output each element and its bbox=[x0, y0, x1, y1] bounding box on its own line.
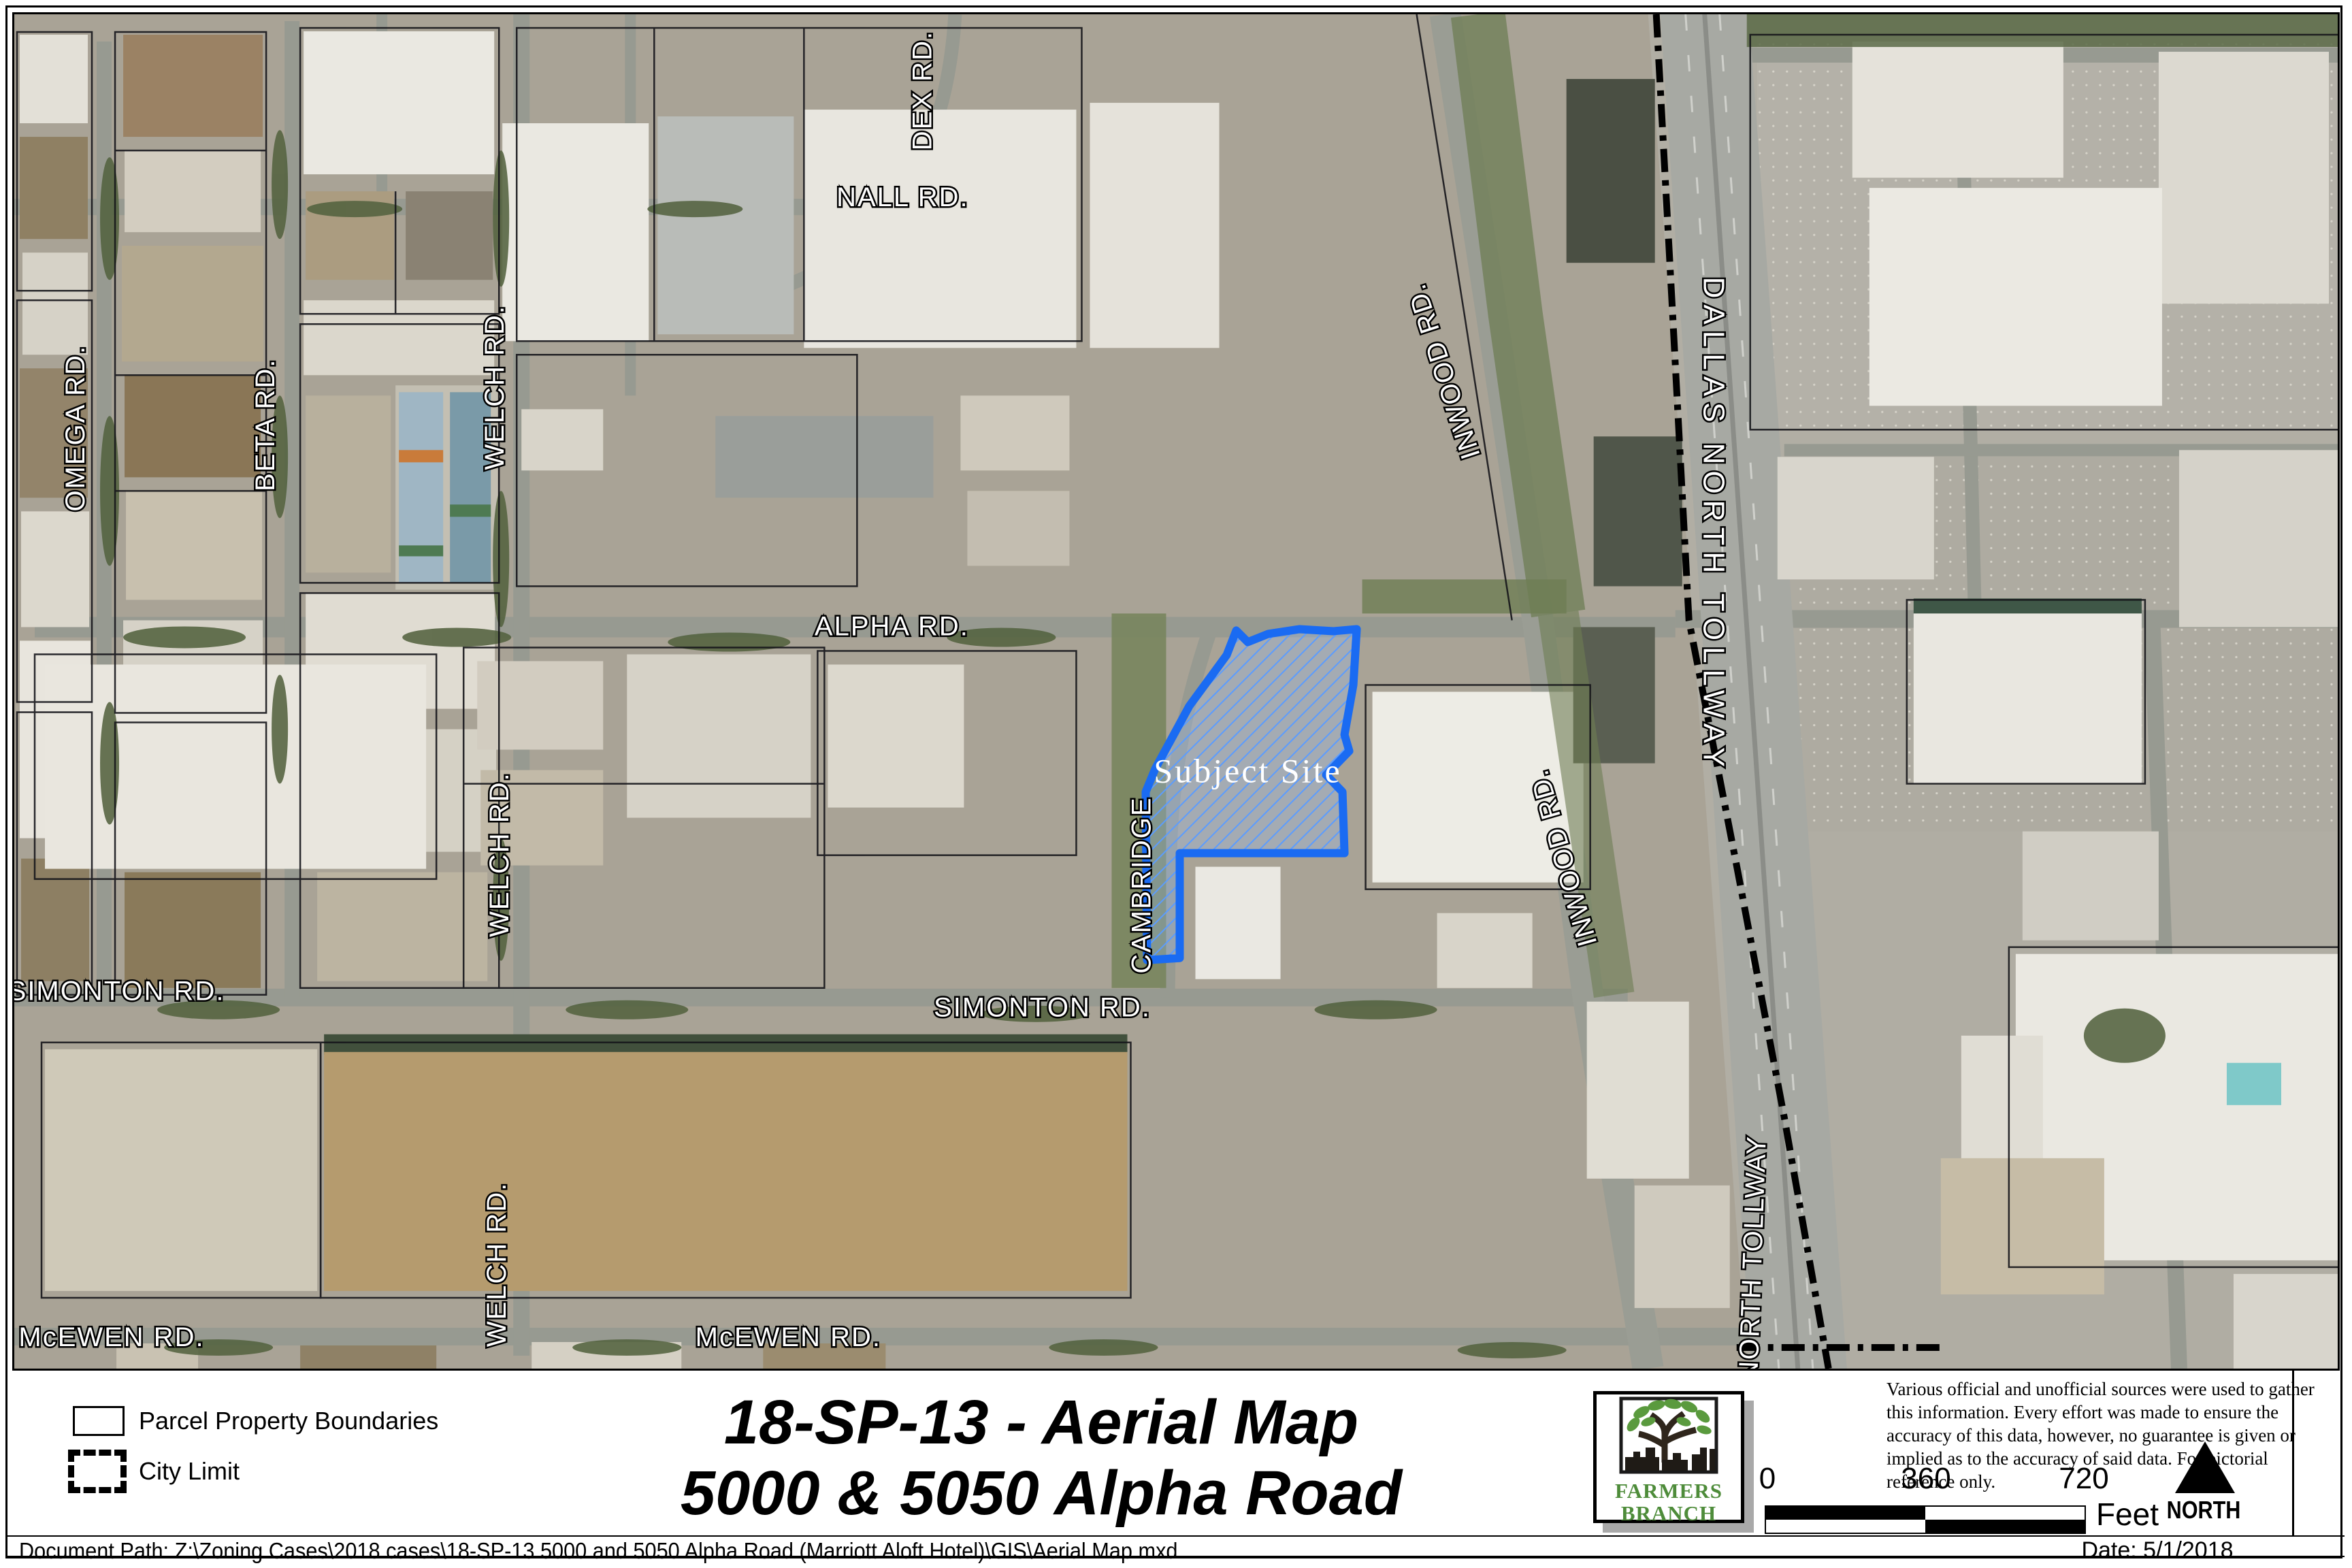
scale-tick-720: 720 bbox=[2033, 1462, 2135, 1496]
legend-label-parcel-boundaries: Parcel Property Boundaries bbox=[139, 1406, 438, 1436]
map-title: 18-SP-13 - Aerial Map 5000 & 5050 Alpha … bbox=[599, 1388, 1484, 1530]
map-title-line1: 18-SP-13 - Aerial Map bbox=[599, 1388, 1484, 1456]
logo-text-branch: BRANCH bbox=[1597, 1502, 1741, 1524]
aerial-map-document: OMEGA RD. BETA RD. WELCH RD. WELCH RD. W… bbox=[0, 0, 2352, 1568]
scale-tick-360: 360 bbox=[1875, 1462, 1977, 1496]
footer-strip-top-line bbox=[7, 1535, 2345, 1537]
farmers-branch-logo: FARMERS BRANCH bbox=[1593, 1391, 1744, 1523]
legend-label-city-limit: City Limit bbox=[139, 1456, 240, 1486]
legend-swatch-city-limit bbox=[68, 1450, 127, 1493]
legend-swatch-parcel-boundaries bbox=[73, 1406, 125, 1436]
document-path: Document Path: Z:\Zoning Cases\2018 case… bbox=[19, 1538, 1177, 1564]
scale-tick-0: 0 bbox=[1716, 1462, 1818, 1496]
panel-divider bbox=[2292, 1370, 2294, 1537]
date-label: Date: 5/1/2018 bbox=[2055, 1537, 2259, 1564]
scale-unit-label: Feet bbox=[2096, 1496, 2159, 1533]
page-border bbox=[5, 5, 2342, 1558]
north-arrow-icon bbox=[2172, 1440, 2238, 1498]
map-title-line2: 5000 & 5050 Alpha Road bbox=[599, 1456, 1484, 1530]
scale-bar bbox=[1765, 1505, 2086, 1534]
north-label: NORTH bbox=[2163, 1496, 2244, 1524]
